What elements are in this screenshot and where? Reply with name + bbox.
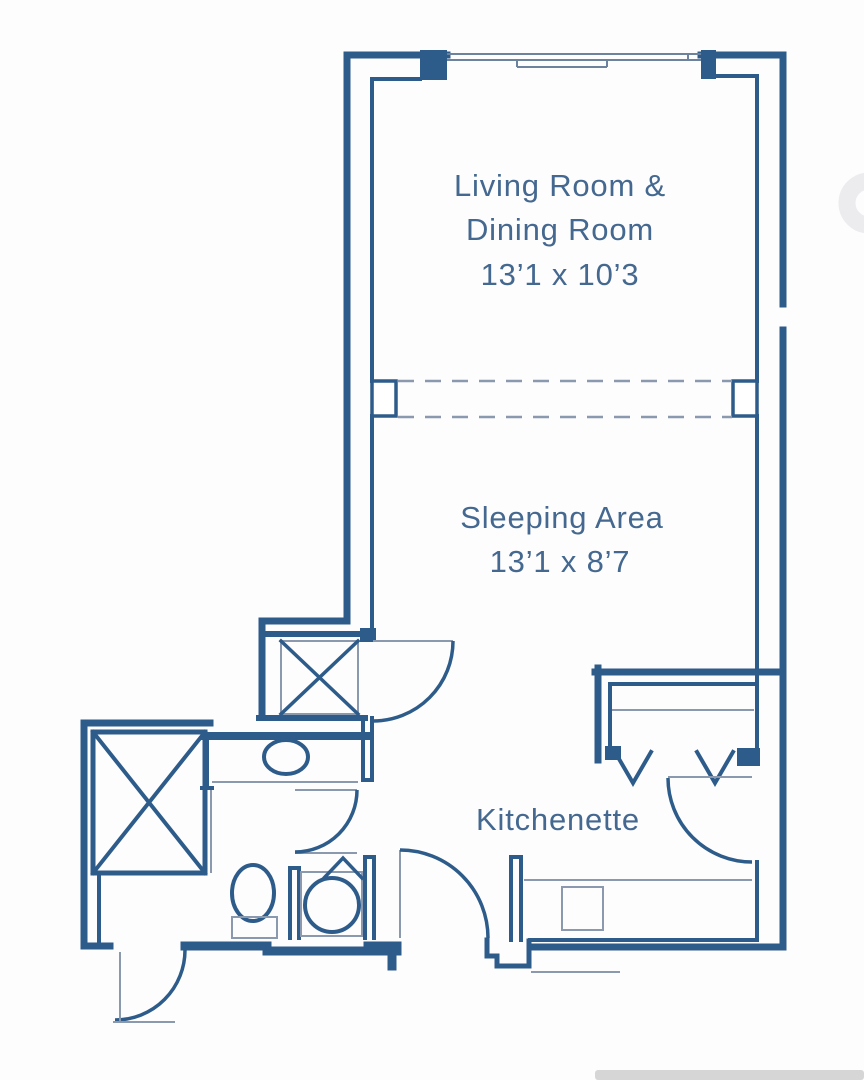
divider-column-west (372, 381, 396, 416)
living-room-dimensions: 13’1 x 10’3 (481, 257, 640, 292)
west-exterior-wall (262, 55, 447, 717)
wardrobe-inner-walls (610, 684, 757, 746)
bifold-arrow-icons (615, 752, 733, 783)
south-corner-block (368, 946, 397, 966)
window-post-west (420, 50, 447, 80)
doors (113, 641, 752, 1022)
exterior-walls (84, 55, 783, 966)
watermark-logo (847, 181, 864, 225)
kitchen-sink-icon (562, 887, 603, 930)
closet-crossed-box (259, 634, 372, 718)
stall-hat-icon (324, 858, 362, 878)
closet-x-icon (281, 641, 358, 714)
floor-plan: Living Room & Dining Room 13’1 x 10’3 Sl… (0, 0, 864, 1080)
toilet-stall-divider (290, 868, 299, 938)
kitchen-inner-walls (530, 862, 757, 940)
east-exterior-wall (531, 330, 783, 947)
entry-strike-block (487, 940, 529, 966)
kitchen-door-arc (668, 778, 752, 862)
divider-column-east (733, 381, 757, 416)
living-room-label-line1: Living Room & (454, 168, 666, 203)
dashed-room-divider (398, 381, 732, 417)
kitchen-partition (511, 857, 521, 940)
northeast-exterior-wall (701, 55, 783, 304)
stall-basin-icon (305, 878, 359, 932)
living-room-label-line2: Dining Room (466, 212, 654, 247)
kitchen-door-stub (737, 748, 760, 766)
room-labels: Living Room & Dining Room 13’1 x 10’3 Sl… (454, 168, 666, 837)
bathroom (212, 740, 362, 938)
stall-east-wall (365, 857, 374, 938)
vestibule-east-wall (363, 718, 372, 780)
kitchenette-label: Kitchenette (476, 802, 640, 837)
sleeping-area-label: Sleeping Area (460, 500, 663, 535)
window-glazing-lines (447, 54, 701, 67)
top-window-icon (447, 54, 701, 67)
bathroom-door-arc (295, 790, 357, 852)
southwest-exterior-wall (84, 723, 210, 946)
closet-hall-door-arc (373, 641, 453, 721)
sleeping-area-dimensions: 13’1 x 8’7 (490, 544, 631, 579)
window-post-east (701, 50, 716, 79)
entry-door-arc (400, 850, 488, 938)
toilet-bowl-icon (232, 865, 274, 921)
wardrobe-outer-walls (595, 668, 783, 760)
exterior-door-arc (115, 950, 185, 1020)
shower-crossed-box (93, 732, 211, 873)
exterior-landing-lines (113, 952, 175, 1022)
wall-posts (360, 50, 760, 766)
shower-x-icon (93, 732, 205, 873)
sink-basin-icon (264, 740, 308, 774)
stall-outline (301, 872, 362, 936)
footer-bar (595, 1070, 864, 1080)
